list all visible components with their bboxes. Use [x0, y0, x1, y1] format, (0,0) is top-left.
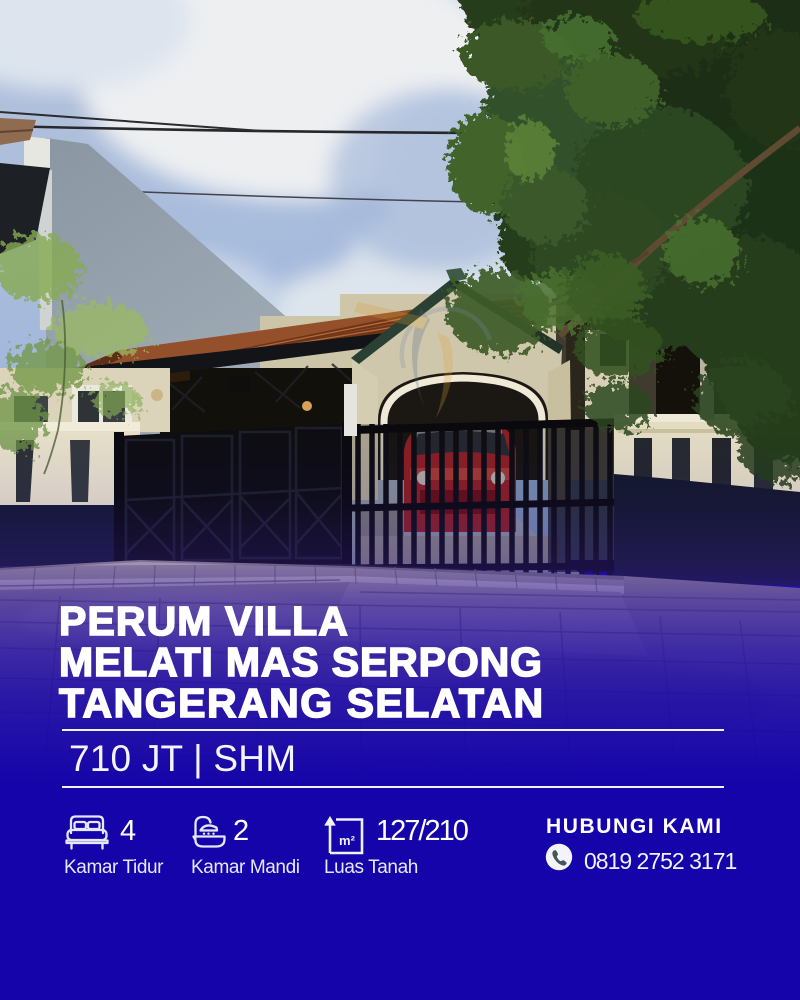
- svg-text:m²: m²: [339, 833, 356, 848]
